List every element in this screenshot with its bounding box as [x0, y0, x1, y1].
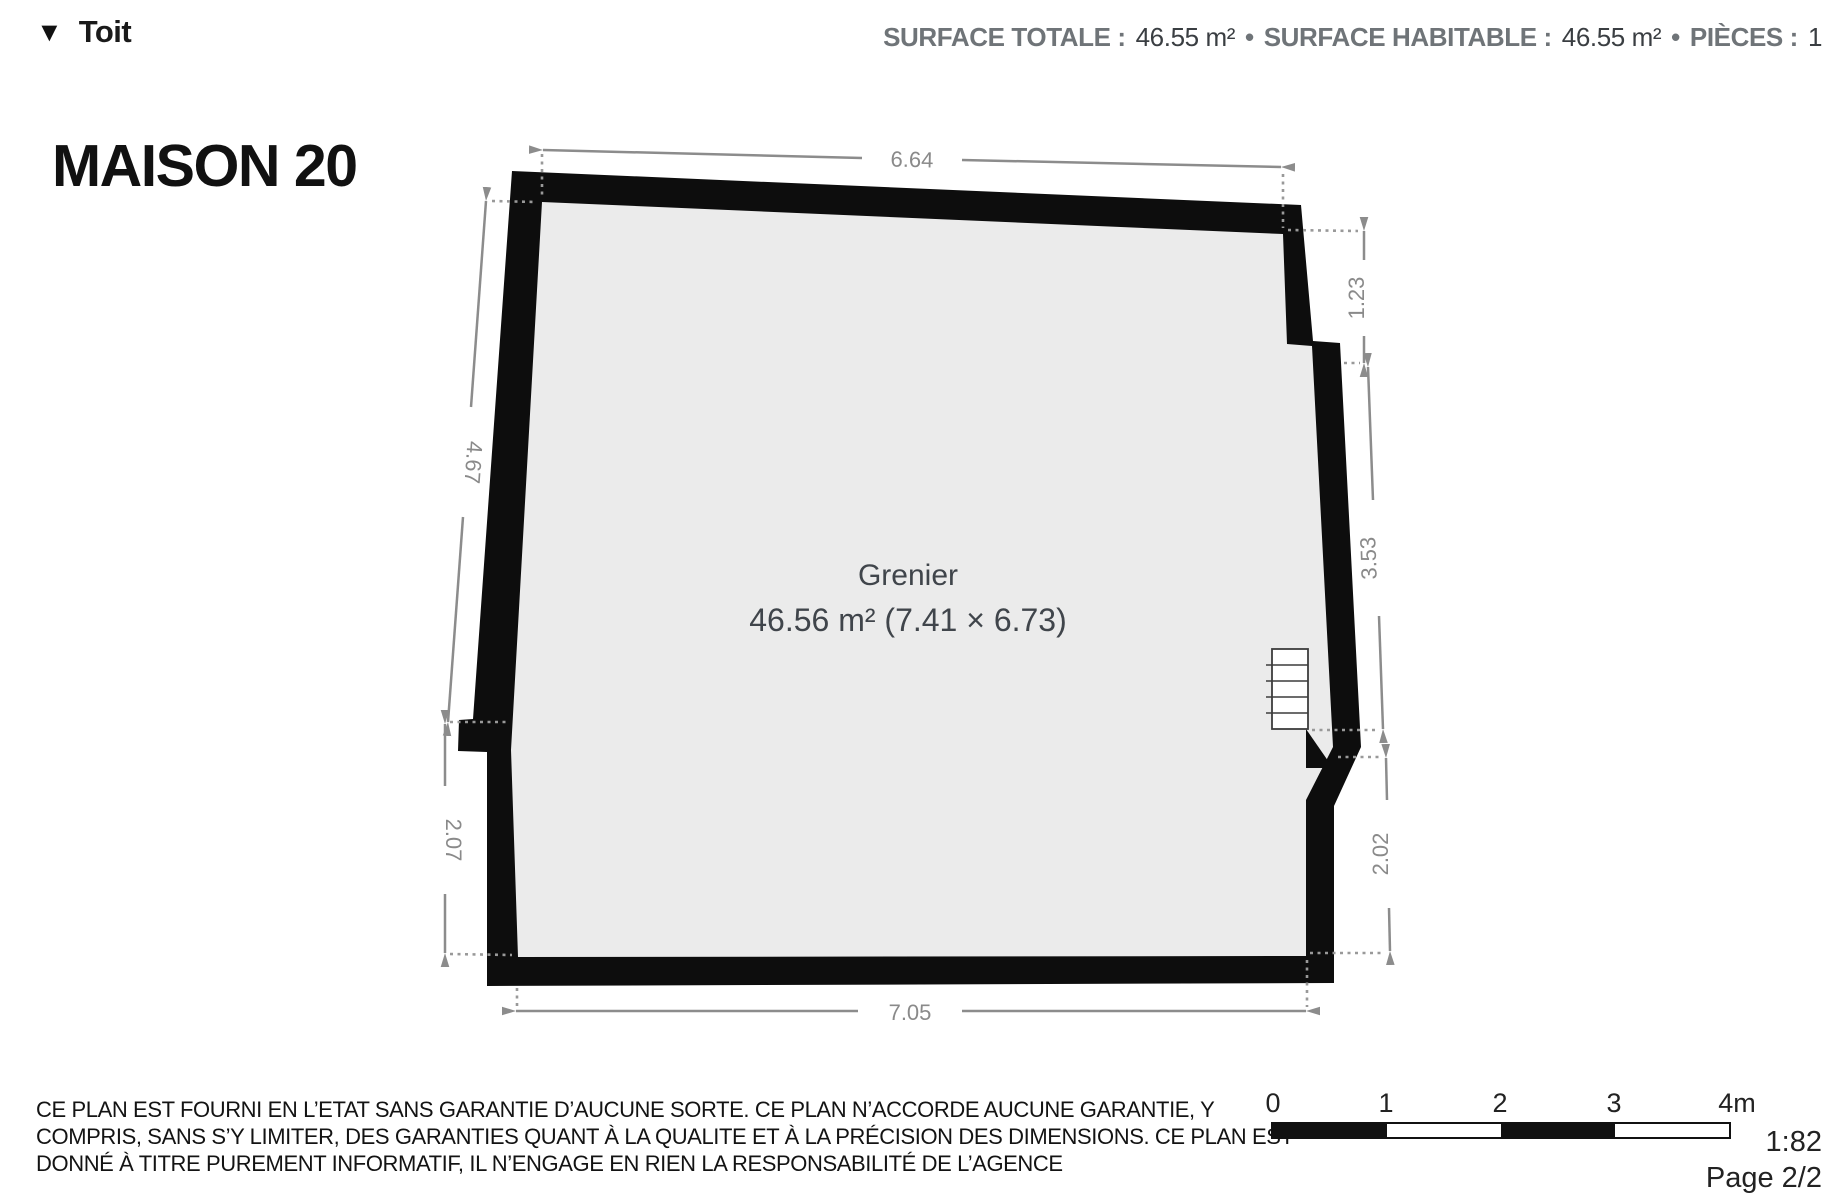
scale-bar-segment: [1387, 1124, 1501, 1137]
scale-tick: 4m: [1697, 1088, 1777, 1119]
dimension-label: 2.02: [1368, 833, 1393, 876]
dimension-label: 1.23: [1344, 277, 1369, 320]
stairs-icon: [1266, 649, 1308, 729]
scale-tick: 3: [1574, 1088, 1654, 1119]
scale-ratio: 1:82: [1766, 1126, 1822, 1159]
scale-tick: 2: [1460, 1088, 1540, 1119]
disclaimer-line: DONNÉ À TITRE PUREMENT INFORMATIF, IL N’…: [36, 1150, 1536, 1177]
dimension-label: 3.53: [1355, 536, 1381, 580]
room-name: Grenier: [858, 559, 958, 592]
dimension-label: 7.05: [889, 1000, 932, 1025]
scale-tick: 1: [1346, 1088, 1426, 1119]
scale-tick-labels: 0 1 2 3 4m: [1271, 1088, 1731, 1118]
scale-bar: [1271, 1122, 1731, 1139]
room-area: 46.56 m² (7.41 × 6.73): [749, 602, 1067, 638]
scale-bar-segment: [1501, 1124, 1615, 1137]
dimension-label: 2.07: [441, 819, 466, 862]
page-number: Page 2/2: [1706, 1162, 1822, 1195]
floor-plan-drawing: Grenier 46.56 m² (7.41 × 6.73) 6.64 4.67…: [0, 0, 1847, 1200]
dimension-label: 6.64: [890, 146, 933, 172]
scale-bar-segment: [1273, 1124, 1387, 1137]
floor-plan-page: ▼ Toit SURFACE TOTALE : 46.55 m² • SURFA…: [0, 0, 1847, 1200]
scale-tick: 0: [1233, 1088, 1313, 1119]
dimension-label: 4.67: [460, 440, 488, 484]
scale-bar-segment: [1615, 1124, 1729, 1137]
